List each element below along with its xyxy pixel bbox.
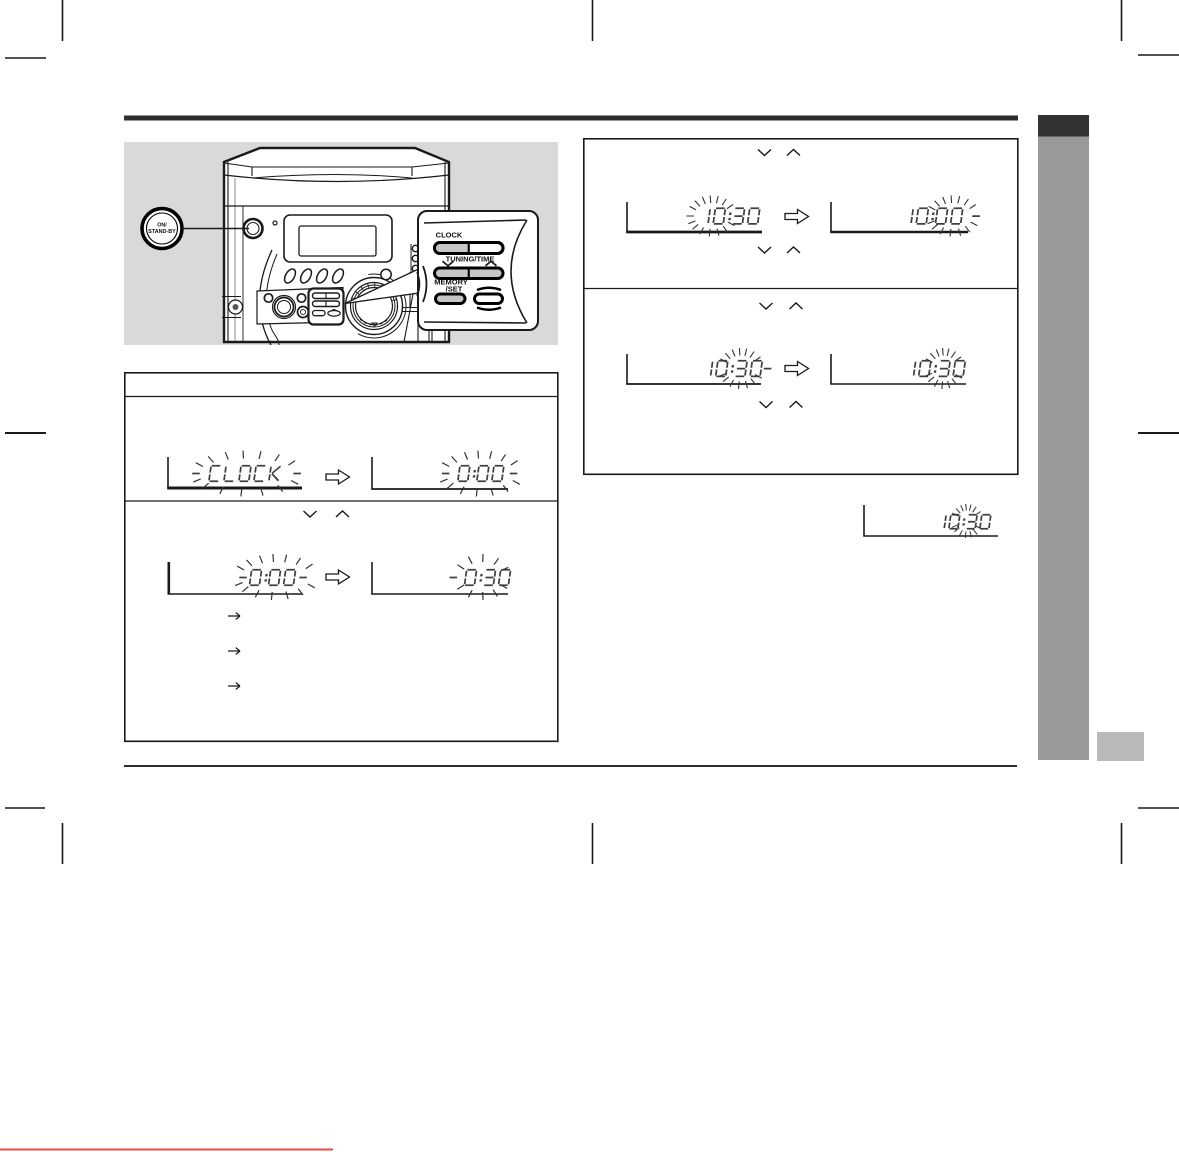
- svg-text:STAND-BY: STAND-BY: [148, 229, 176, 235]
- svg-text:CLOCK: CLOCK: [436, 231, 463, 240]
- svg-text:/SET: /SET: [446, 285, 463, 294]
- svg-text:ON/: ON/: [157, 223, 167, 229]
